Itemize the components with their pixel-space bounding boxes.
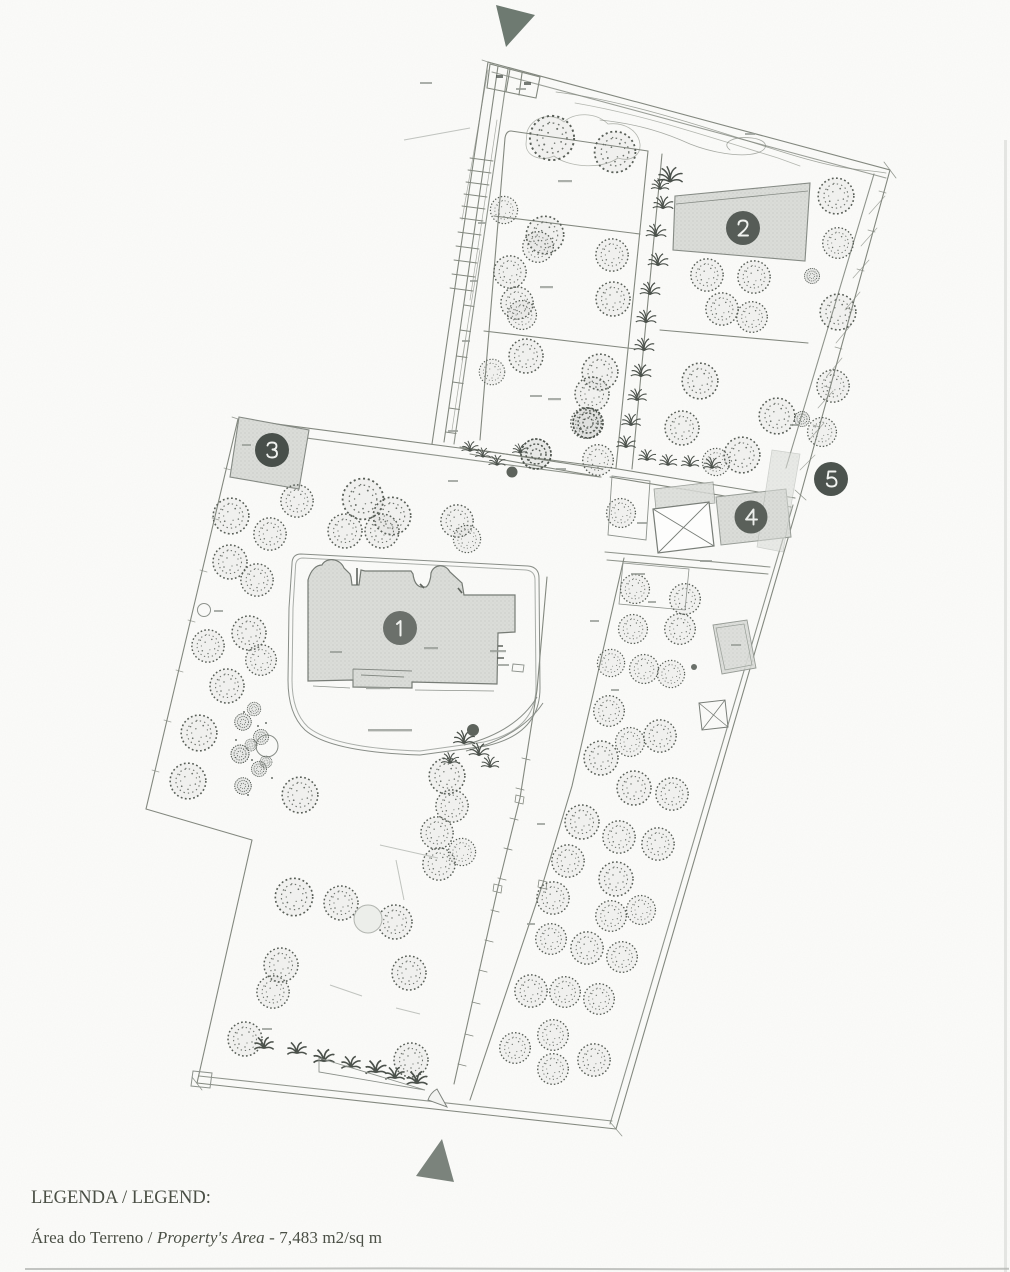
svg-text:LEGENDA / LEGEND:: LEGENDA / LEGEND:: [31, 1188, 211, 1208]
svg-text:Área do Terreno / Property's A: Área do Terreno / Property's Area - 7,48…: [31, 1228, 382, 1247]
